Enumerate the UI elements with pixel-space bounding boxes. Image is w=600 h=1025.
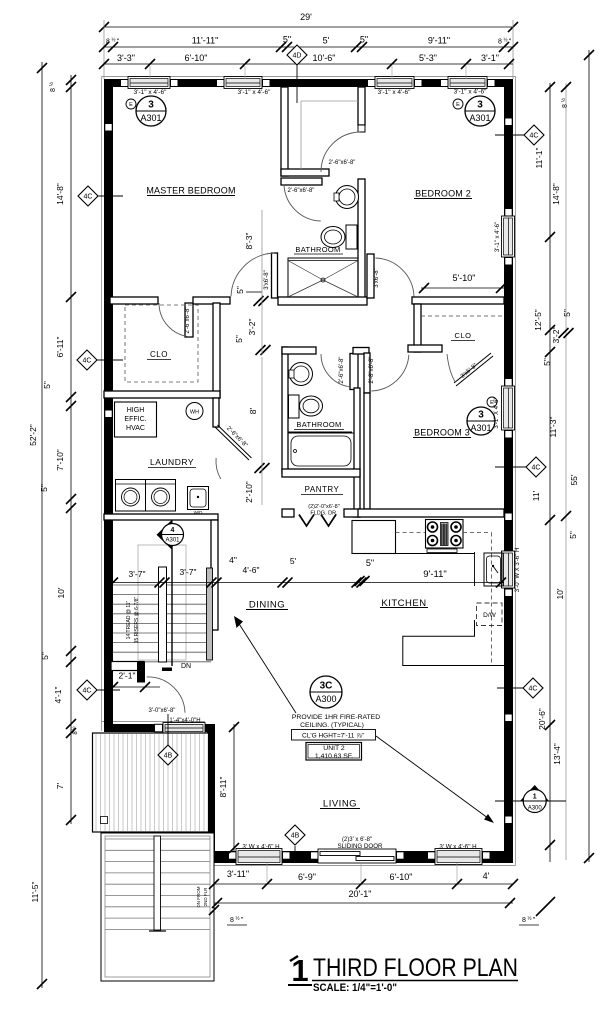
- svg-text:13'-4": 13'-4": [552, 743, 562, 765]
- svg-text:LIVING: LIVING: [323, 799, 357, 810]
- svg-text:9'-11": 9'-11": [428, 36, 450, 46]
- svg-text:5'-10": 5'-10": [453, 273, 476, 283]
- svg-text:5": 5": [42, 381, 52, 389]
- svg-text:3'-3": 3'-3": [117, 53, 135, 63]
- svg-text:10': 10': [56, 587, 66, 598]
- svg-text:3'-7": 3'-7": [129, 569, 146, 579]
- svg-text:11'-1": 11'-1": [534, 147, 544, 168]
- svg-text:7': 7': [55, 782, 65, 789]
- svg-text:6'-11": 6'-11": [55, 336, 65, 357]
- svg-text:12'-5": 12'-5": [533, 309, 543, 331]
- svg-text:3'-1" x 4'-6": 3'-1" x 4'-6": [378, 89, 411, 96]
- svg-text:CEILING. (TYPICAL): CEILING. (TYPICAL): [300, 722, 364, 729]
- svg-text:14 TREAD @ 11": 14 TREAD @ 11": [126, 600, 132, 639]
- svg-text:CLO: CLO: [150, 350, 168, 359]
- svg-text:5": 5": [234, 335, 244, 343]
- svg-text:5": 5": [235, 286, 245, 294]
- svg-text:4C: 4C: [83, 687, 92, 694]
- svg-text:14'-8": 14'-8": [551, 183, 561, 205]
- svg-text:11'-11": 11'-11": [192, 36, 219, 46]
- svg-text:9'-11": 9'-11": [423, 569, 447, 580]
- svg-text:8: 8: [230, 917, 234, 924]
- svg-text:14'-8": 14'-8": [55, 183, 65, 205]
- svg-text:10': 10': [555, 588, 565, 599]
- svg-text:THIRD FLOOR PLAN: THIRD FLOOR PLAN: [313, 954, 518, 982]
- svg-text:5": 5": [366, 558, 374, 568]
- svg-text:MASTER BEDROOM: MASTER BEDROOM: [146, 186, 235, 196]
- svg-text:A301: A301: [470, 423, 491, 433]
- svg-text:2'-8"x6'-8": 2'-8"x6'-8": [369, 357, 375, 384]
- svg-text:3: 3: [148, 100, 154, 111]
- svg-text:BATHROOM: BATHROOM: [296, 420, 341, 429]
- svg-text:15 RISERS @ 6-7/8": 15 RISERS @ 6-7/8": [134, 596, 140, 643]
- svg-text:4C: 4C: [530, 132, 539, 139]
- svg-text:5": 5": [542, 358, 552, 366]
- svg-text:DINING: DINING: [249, 600, 285, 611]
- svg-text:DN: DN: [181, 663, 191, 670]
- svg-text:A301: A301: [469, 113, 490, 123]
- svg-text:UNIT 2: UNIT 2: [323, 745, 345, 752]
- svg-text:SLIDING DOOR: SLIDING DOOR: [337, 843, 383, 850]
- svg-text:10'-6": 10'-6": [313, 53, 336, 63]
- svg-text:4B: 4B: [164, 752, 173, 759]
- svg-text:3'-0" W X 3'-6" H: 3'-0" W X 3'-6" H: [515, 548, 521, 593]
- svg-text:20'-6": 20'-6": [537, 708, 547, 730]
- svg-text:8': 8': [248, 407, 258, 414]
- svg-text:CL'G HGHT=7'-11 ⅞": CL'G HGHT=7'-11 ⅞": [302, 733, 365, 740]
- svg-text:4C: 4C: [84, 193, 93, 200]
- svg-text:CLO: CLO: [455, 331, 472, 340]
- svg-text:1'-4"x4'-0"H: 1'-4"x4'-0"H: [169, 718, 200, 724]
- svg-text:4D: 4D: [293, 52, 302, 59]
- svg-text:8: 8: [562, 104, 569, 108]
- svg-text:2'-6"x6'-8": 2'-6"x6'-8": [329, 160, 356, 166]
- svg-text:2'-6"x6'-8": 2'-6"x6'-8": [288, 188, 315, 194]
- svg-text:3'-1" x 4'-6": 3'-1" x 4'-6": [134, 89, 167, 96]
- svg-text:4C: 4C: [529, 685, 538, 692]
- svg-text:5": 5": [562, 309, 572, 317]
- svg-text:HIGH: HIGH: [127, 407, 145, 414]
- svg-text:3'-1" x 4'-6": 3'-1" x 4'-6": [238, 89, 271, 96]
- svg-text:3: 3: [478, 410, 484, 421]
- svg-text:6'-10": 6'-10": [185, 53, 208, 63]
- svg-text:2'-6"x6'-8": 2'-6"x6'-8": [339, 357, 345, 384]
- svg-text:4C: 4C: [532, 464, 541, 471]
- svg-text:1,410.63 SF.: 1,410.63 SF.: [315, 753, 353, 760]
- svg-text:4B: 4B: [291, 832, 300, 839]
- svg-text:5': 5': [323, 36, 330, 46]
- svg-text:3'-1" X 4'-6": 3'-1" X 4'-6": [494, 397, 500, 428]
- svg-text:11'-5": 11'-5": [30, 881, 40, 902]
- svg-text:3'-1" x 4'-6": 3'-1" x 4'-6": [495, 222, 501, 252]
- svg-text:2'-1": 2'-1": [119, 671, 136, 681]
- svg-text:3'x6'-8": 3'x6'-8": [374, 268, 380, 287]
- svg-text:5": 5": [39, 484, 49, 492]
- svg-text:8'-3": 8'-3": [244, 233, 254, 250]
- svg-text:3'-1" x 4'-6": 3'-1" x 4'-6": [454, 89, 487, 96]
- svg-text:WH: WH: [190, 410, 199, 416]
- svg-text:PROVIDE 1HR FIRE-RATED: PROVIDE 1HR FIRE-RATED: [292, 714, 380, 721]
- svg-text:11': 11': [531, 490, 541, 501]
- svg-text:2ND FLR: 2ND FLR: [203, 887, 208, 907]
- svg-text:3'-0"x6'-8": 3'-0"x6'-8": [149, 708, 176, 714]
- svg-text:PANTRY: PANTRY: [305, 485, 340, 494]
- svg-text:3' W x 4'-6" H: 3' W x 4'-6" H: [439, 844, 476, 851]
- svg-text:LAUNDRY: LAUNDRY: [150, 457, 194, 467]
- svg-text:A301: A301: [165, 538, 180, 544]
- svg-text:E: E: [129, 102, 133, 108]
- svg-text:EFFIC.: EFFIC.: [124, 416, 146, 423]
- svg-text:5": 5": [568, 531, 578, 539]
- svg-text:4': 4': [483, 871, 490, 881]
- svg-text:8: 8: [498, 39, 502, 46]
- svg-text:2'-6"x6'-8": 2'-6"x6'-8": [185, 307, 191, 334]
- svg-text:3'-2": 3'-2": [551, 327, 561, 344]
- svg-text:8: 8: [522, 917, 526, 924]
- svg-text:8: 8: [50, 88, 57, 92]
- svg-text:7'-10": 7'-10": [55, 449, 65, 471]
- svg-text:3'-11": 3'-11": [227, 869, 249, 879]
- svg-text:5': 5': [290, 556, 297, 566]
- svg-text:SCALE: 1/4"=1'-0": SCALE: 1/4"=1'-0": [313, 982, 397, 994]
- svg-text:3'-7": 3'-7": [180, 567, 197, 577]
- svg-text:11'-3": 11'-3": [548, 416, 558, 437]
- svg-text:4": 4": [229, 555, 237, 565]
- svg-text:4'-1": 4'-1": [53, 687, 63, 704]
- svg-text:E: E: [456, 102, 460, 108]
- svg-text:3: 3: [477, 100, 483, 111]
- svg-text:A300: A300: [315, 694, 336, 704]
- svg-text:FLDG. DR.: FLDG. DR.: [310, 511, 338, 517]
- svg-text:DN FROM: DN FROM: [196, 886, 201, 907]
- svg-text:5'-3": 5'-3": [419, 53, 437, 63]
- svg-text:20'-1": 20'-1": [349, 889, 372, 899]
- svg-text:3' W x 4'-6" H: 3' W x 4'-6" H: [242, 844, 279, 851]
- svg-text:4C: 4C: [83, 357, 92, 364]
- svg-text:4'-6": 4'-6": [243, 565, 260, 575]
- svg-text:8'-11": 8'-11": [218, 776, 228, 797]
- svg-text:1: 1: [533, 794, 537, 801]
- svg-text:6'-9": 6'-9": [298, 872, 316, 882]
- svg-text:3'x6'-8": 3'x6'-8": [264, 270, 270, 289]
- svg-text:HVAC: HVAC: [126, 425, 145, 432]
- svg-text:3C: 3C: [320, 681, 333, 692]
- svg-text:BEDROOM 2: BEDROOM 2: [415, 189, 471, 199]
- svg-text:A300: A300: [528, 806, 543, 812]
- svg-text:29': 29': [300, 12, 312, 22]
- svg-text:BATHROOM: BATHROOM: [295, 245, 340, 254]
- svg-text:(2)2'-0"x6'-8": (2)2'-0"x6'-8": [308, 504, 339, 510]
- svg-text:BEDROOM 3: BEDROOM 3: [414, 428, 470, 438]
- svg-text:A301: A301: [140, 113, 161, 123]
- svg-text:3'-1": 3'-1": [481, 53, 499, 63]
- svg-text:6'-10": 6'-10": [390, 872, 413, 882]
- svg-text:55': 55': [569, 474, 579, 485]
- svg-text:52'-2": 52'-2": [28, 424, 38, 446]
- svg-text:3'-2": 3'-2": [247, 319, 257, 336]
- svg-text:2'-10": 2'-10": [244, 481, 254, 503]
- svg-text:D/W: D/W: [483, 612, 497, 619]
- svg-text:4: 4: [171, 527, 175, 534]
- svg-text:5": 5": [40, 652, 50, 660]
